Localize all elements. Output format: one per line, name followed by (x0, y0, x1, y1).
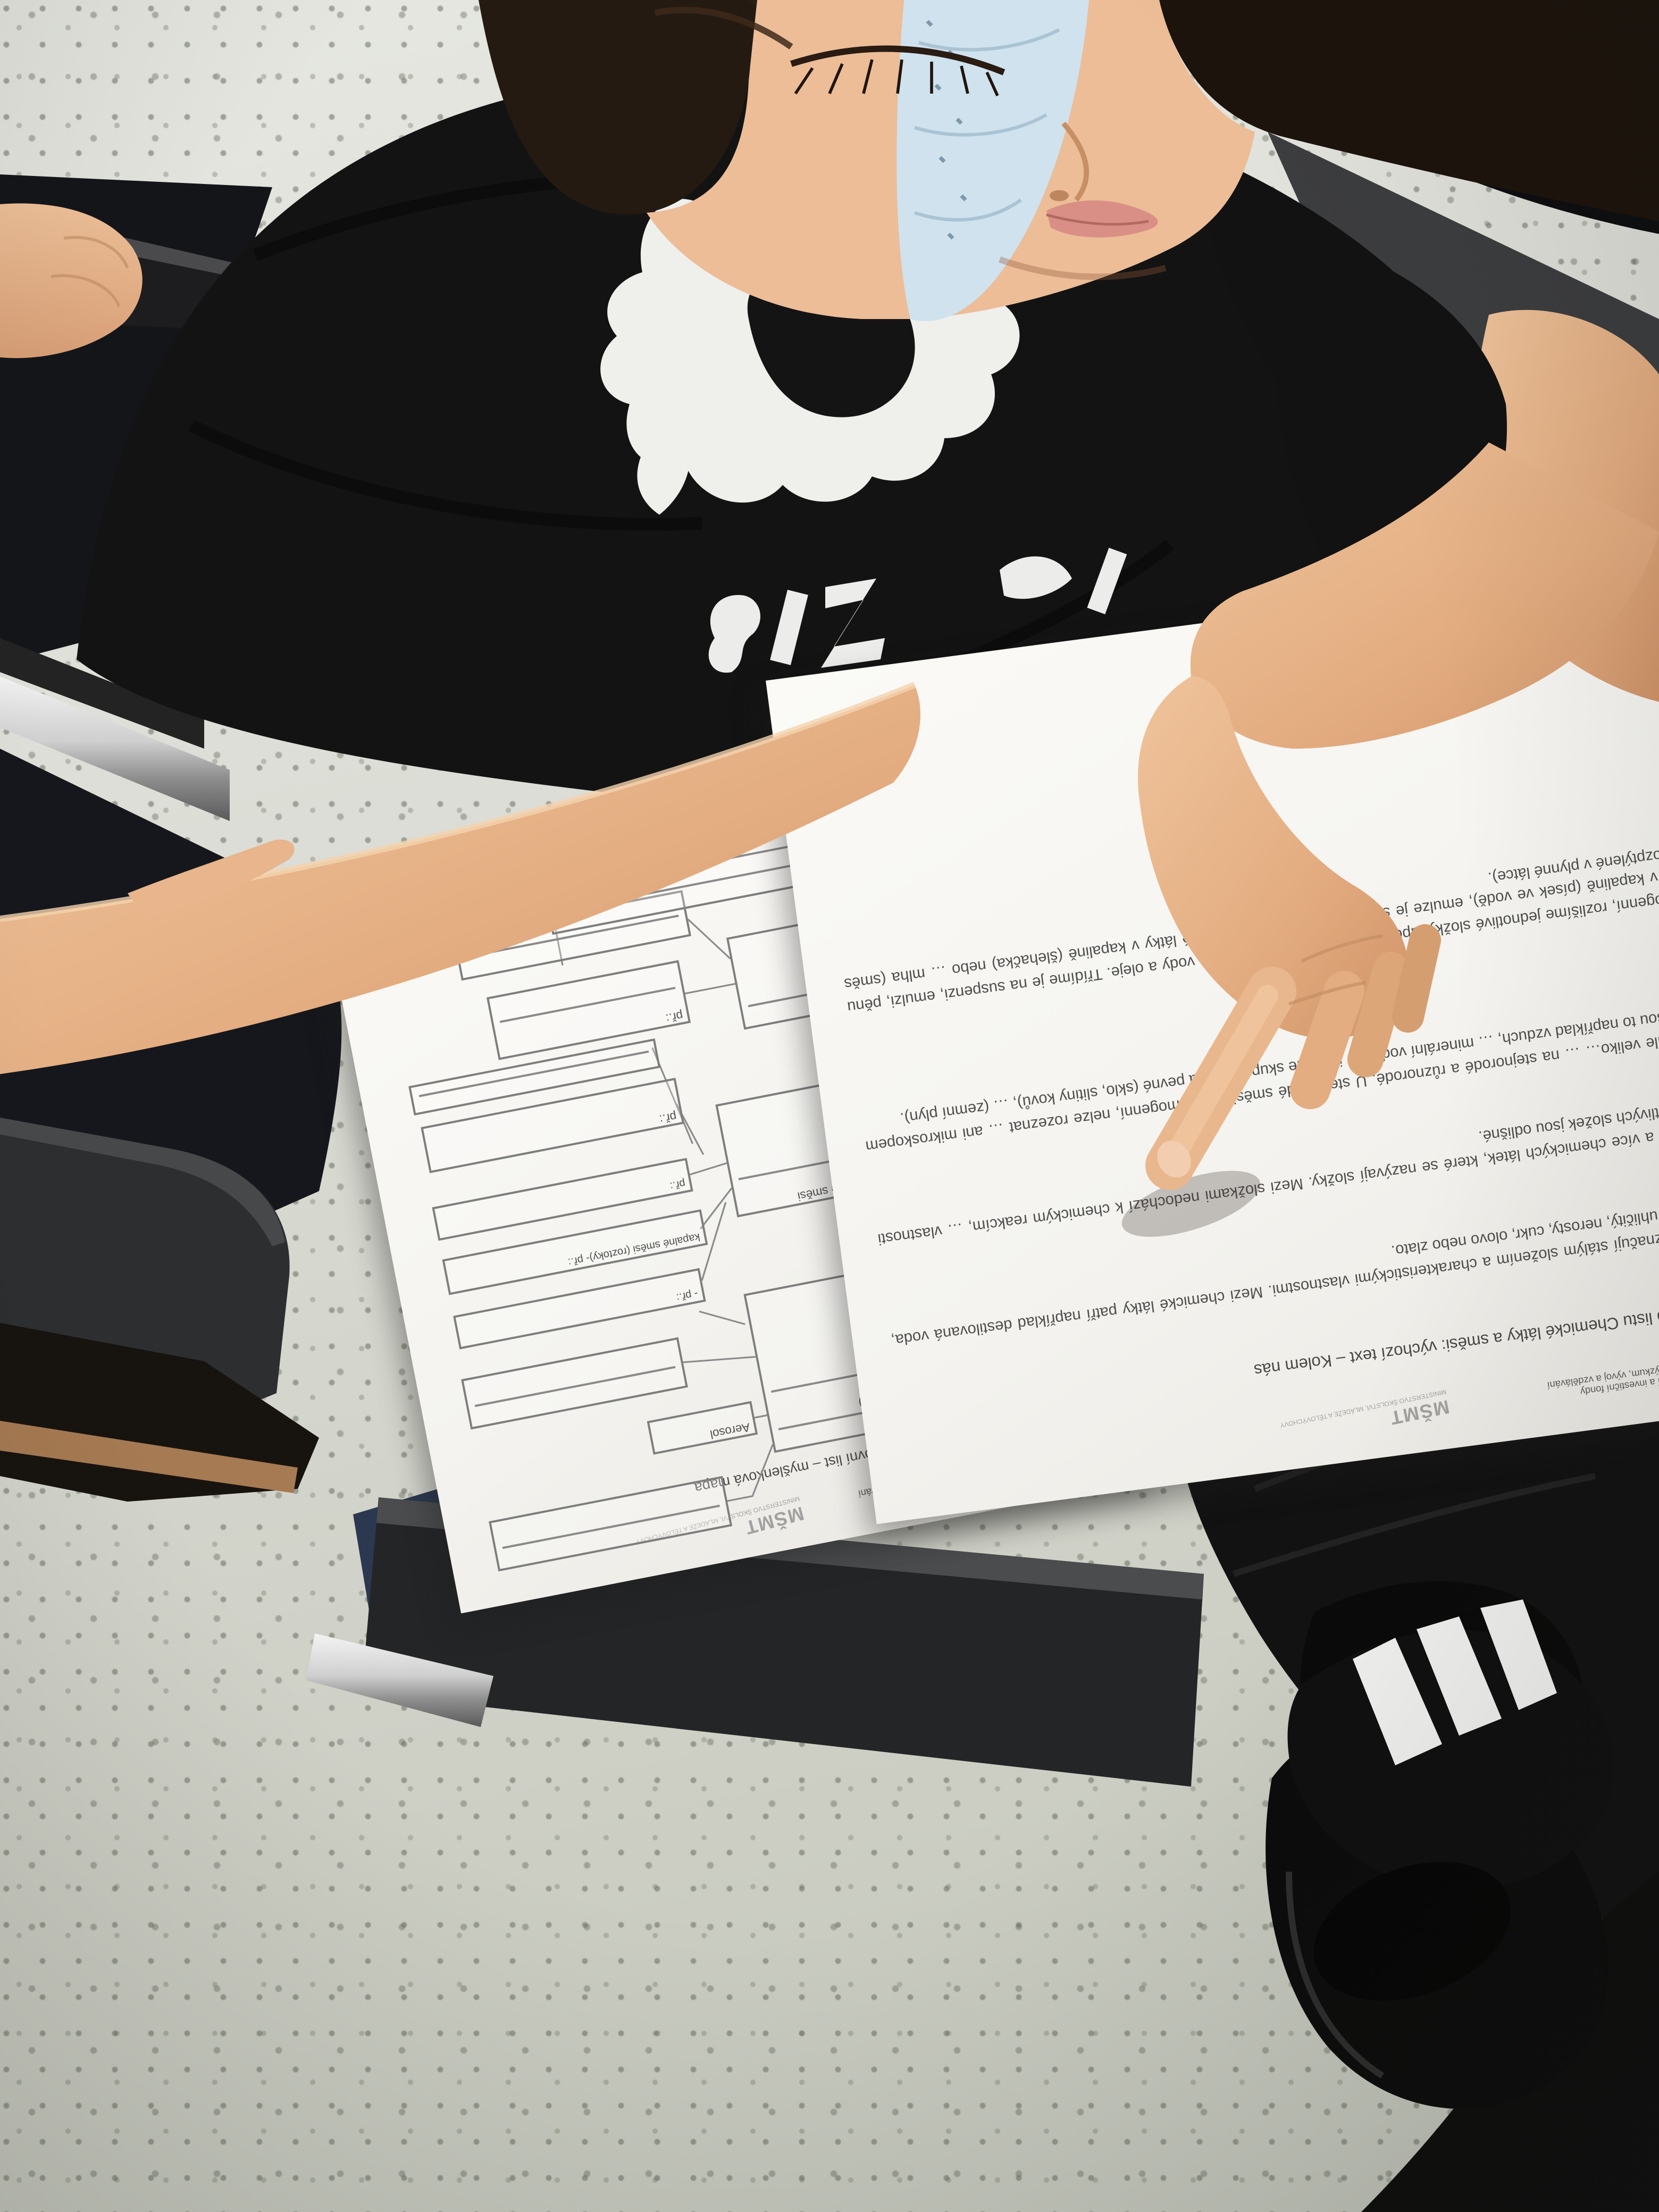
index-finger-highlight (1174, 995, 1268, 1157)
arms-layer (0, 0, 1659, 2212)
curled-finger-pinky (1408, 940, 1425, 1017)
classroom-photo-scene: EVROPSKÁ UNIE Evropské strukturální a in… (0, 0, 1659, 2212)
curled-finger-ring (1365, 970, 1391, 1059)
student-right-forearm (0, 685, 920, 1074)
